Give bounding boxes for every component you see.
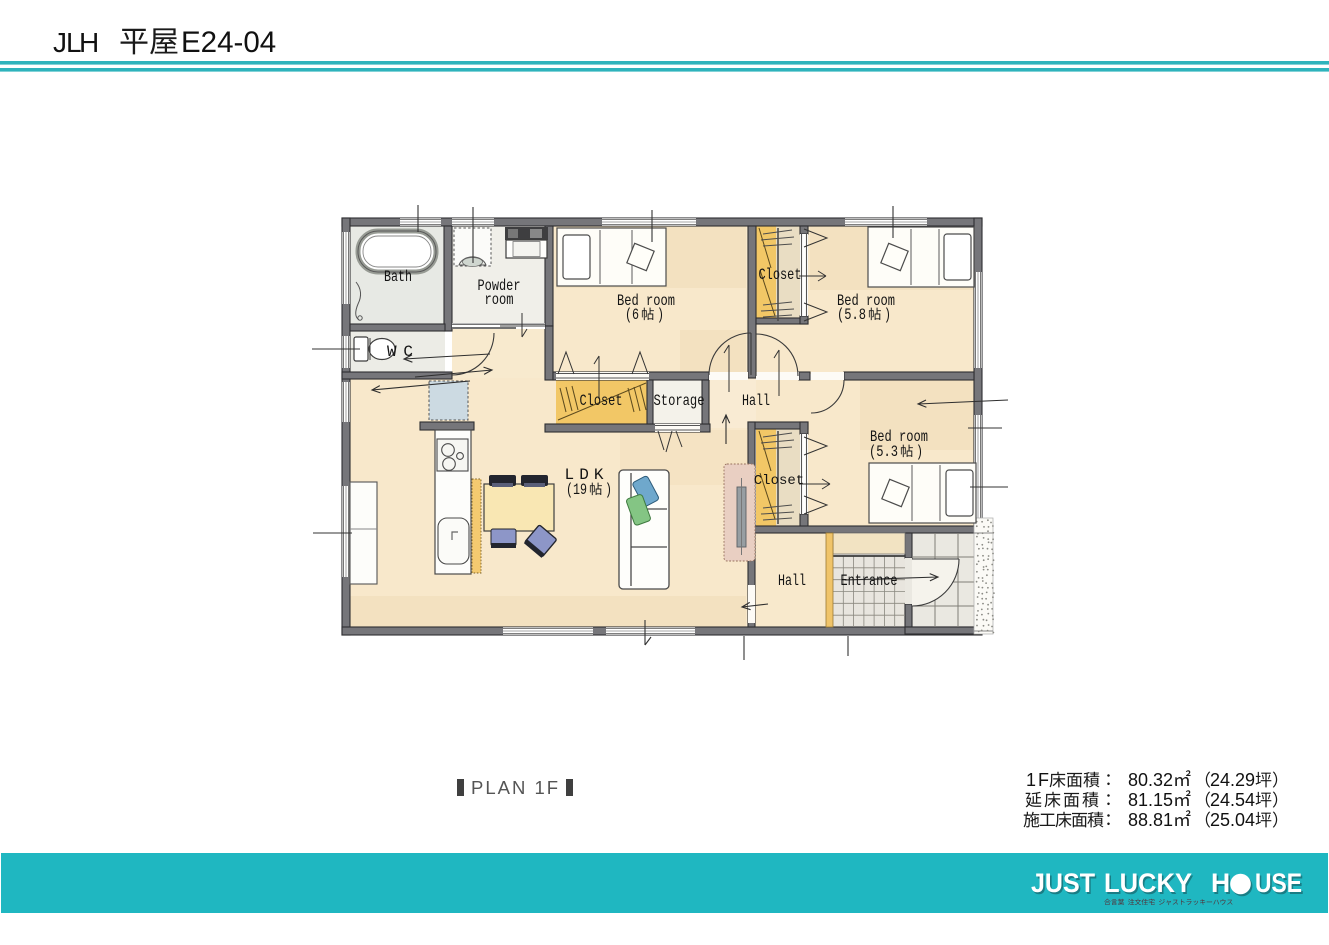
svg-text:Bath: Bath — [384, 268, 412, 286]
svg-text:F: F — [1038, 770, 1049, 790]
svg-text:): ) — [657, 306, 664, 324]
svg-text:E24-04: E24-04 — [181, 26, 276, 59]
svg-text:88.81: 88.81 — [1128, 810, 1173, 830]
svg-text:JLH: JLH — [53, 27, 99, 58]
svg-text:(19: (19 — [566, 481, 587, 499]
svg-text:): ) — [605, 481, 612, 499]
svg-text:24.29: 24.29 — [1210, 770, 1255, 790]
svg-text:JUST: JUST — [1031, 868, 1095, 898]
svg-text:(5.3: (5.3 — [869, 443, 898, 461]
svg-text:USE: USE — [1255, 868, 1302, 898]
svg-text:PLAN 1F: PLAN 1F — [471, 777, 560, 798]
svg-text:24.54: 24.54 — [1210, 790, 1255, 810]
svg-text:80.32: 80.32 — [1128, 770, 1173, 790]
svg-text:Entrance: Entrance — [841, 572, 898, 590]
svg-text:(6: (6 — [625, 306, 639, 324]
svg-text:): ) — [884, 306, 891, 324]
svg-text:(5.8: (5.8 — [837, 306, 866, 324]
svg-text:Closet: Closet — [754, 473, 804, 489]
svg-text:1: 1 — [1026, 770, 1036, 790]
svg-text:Storage: Storage — [654, 392, 705, 410]
svg-text:H: H — [1211, 868, 1230, 898]
svg-text:Closet: Closet — [759, 266, 802, 284]
svg-text:Hall: Hall — [778, 572, 806, 590]
svg-text:room: room — [485, 291, 514, 309]
svg-text:): ) — [916, 443, 923, 461]
svg-text:25.04: 25.04 — [1210, 810, 1255, 830]
svg-text:LUCKY: LUCKY — [1104, 868, 1192, 898]
svg-text:Closet: Closet — [580, 392, 623, 410]
svg-text:81.15: 81.15 — [1128, 790, 1173, 810]
svg-text:Hall: Hall — [742, 392, 770, 410]
